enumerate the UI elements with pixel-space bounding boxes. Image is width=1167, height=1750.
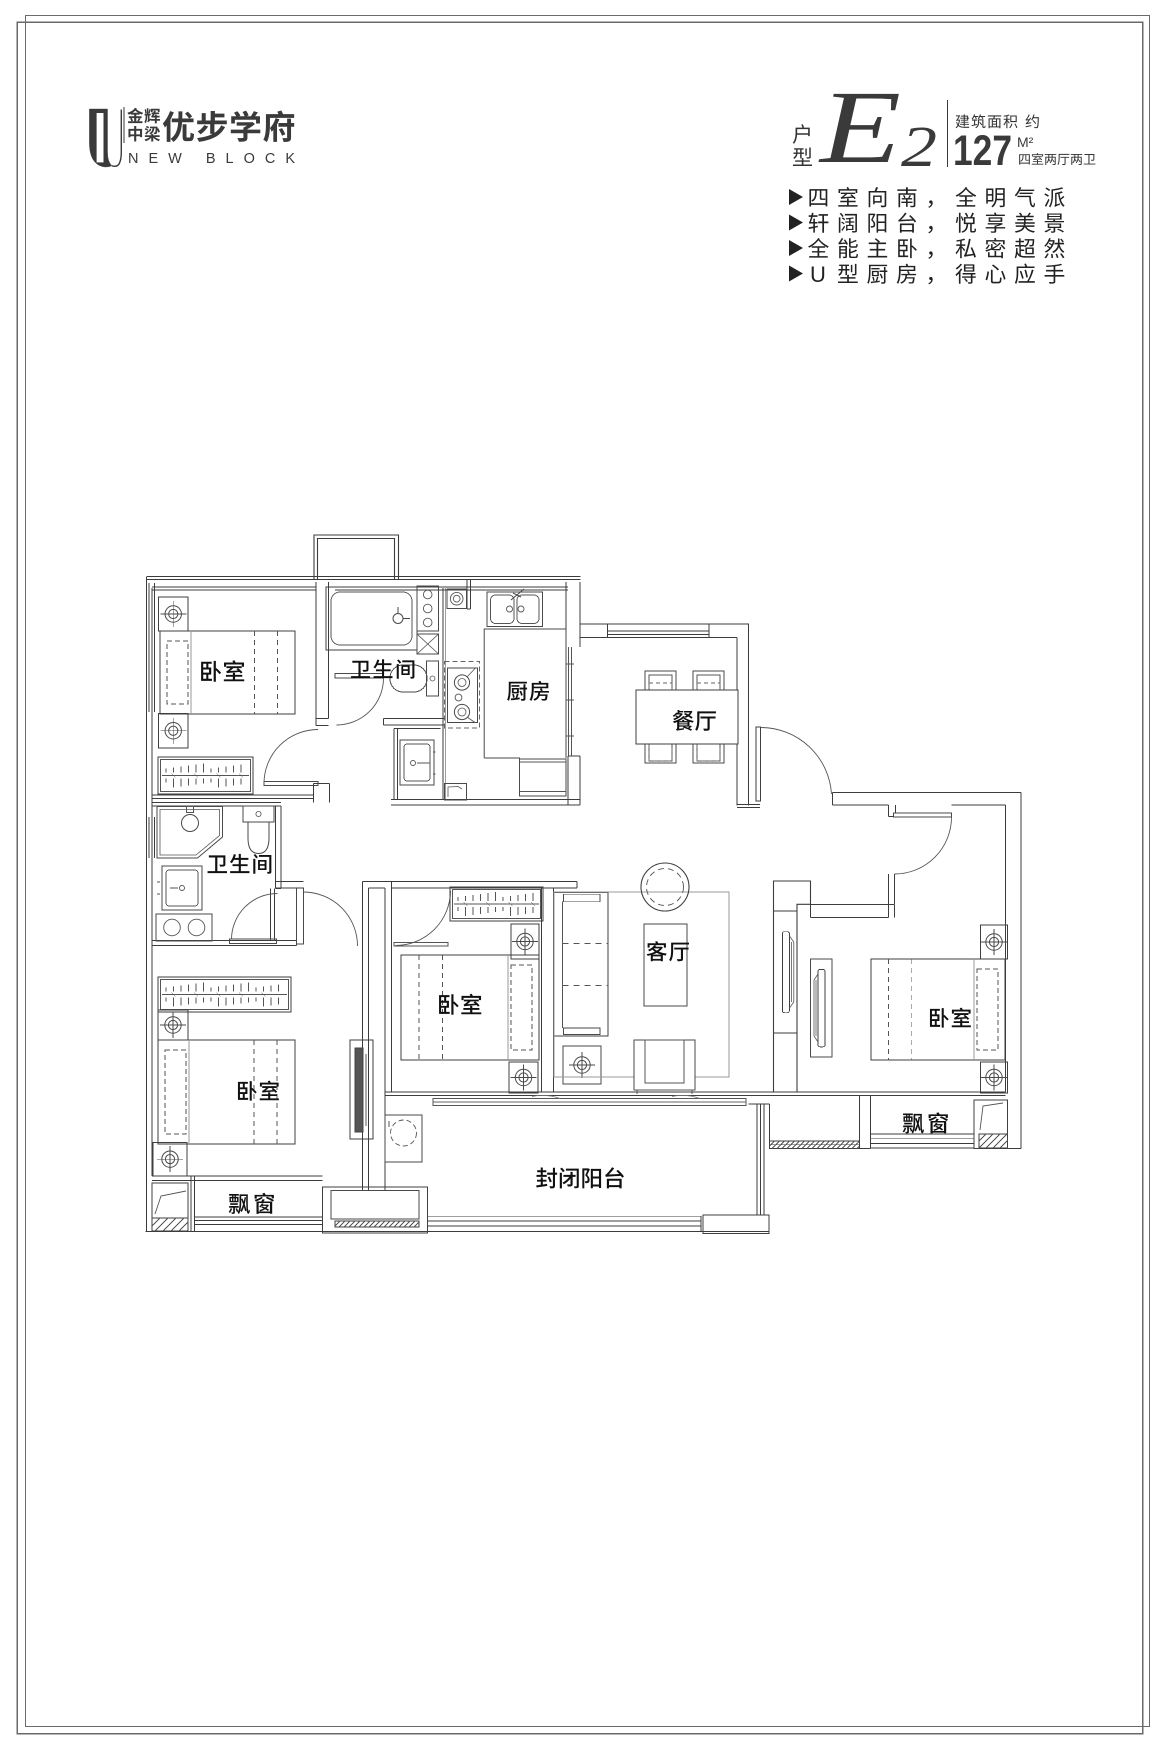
svg-text:E: E bbox=[817, 70, 901, 185]
svg-text:M²: M² bbox=[1017, 134, 1034, 150]
svg-text:127: 127 bbox=[953, 127, 1012, 175]
svg-text:2: 2 bbox=[901, 114, 937, 179]
svg-text:U: U bbox=[810, 262, 826, 287]
svg-text:NEW BLOCK: NEW BLOCK bbox=[128, 151, 305, 167]
